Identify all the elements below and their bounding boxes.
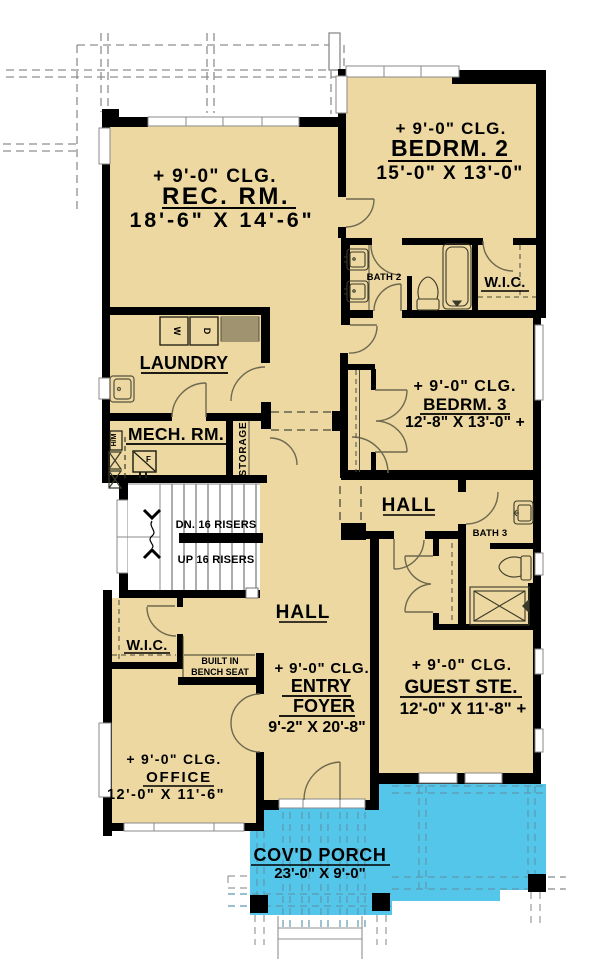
svg-text:LAUNDRY: LAUNDRY bbox=[140, 353, 229, 373]
svg-text:23'-0" X 9'-0": 23'-0" X 9'-0" bbox=[274, 865, 365, 882]
svg-text:HALL: HALL bbox=[276, 602, 331, 623]
svg-text:+ 9'-0" CLG.: + 9'-0" CLG. bbox=[412, 657, 512, 674]
svg-text:18'-6" X 14'-6": 18'-6" X 14'-6" bbox=[130, 208, 315, 232]
svg-text:REC. RM.: REC. RM. bbox=[162, 183, 290, 210]
svg-text:H/M: H/M bbox=[111, 433, 118, 446]
svg-text:W: W bbox=[172, 327, 182, 336]
svg-text:W.I.C.: W.I.C. bbox=[484, 275, 525, 291]
svg-text:BATH 3: BATH 3 bbox=[473, 528, 508, 539]
svg-text:ENTRY: ENTRY bbox=[291, 676, 351, 696]
svg-text:D: D bbox=[202, 328, 212, 335]
svg-text:+ 9'-0" CLG.: + 9'-0" CLG. bbox=[275, 660, 370, 677]
svg-text:DN. 16 RISERS: DN. 16 RISERS bbox=[176, 519, 257, 531]
svg-text:+ 9'-0" CLG.: + 9'-0" CLG. bbox=[126, 751, 221, 767]
svg-text:FOYER: FOYER bbox=[293, 696, 355, 716]
svg-text:HALL: HALL bbox=[382, 495, 437, 516]
svg-text:UP 16 RISERS: UP 16 RISERS bbox=[178, 554, 255, 566]
svg-text:15'-0" X 13'-0": 15'-0" X 13'-0" bbox=[376, 163, 523, 184]
svg-text:W.I.C.: W.I.C. bbox=[126, 638, 167, 654]
svg-text:STORAGE: STORAGE bbox=[238, 422, 249, 477]
svg-text:12'-8" X 13'-0" +: 12'-8" X 13'-0" + bbox=[405, 414, 525, 431]
svg-text:OFFICE: OFFICE bbox=[146, 769, 212, 786]
svg-text:+ 9'-0" CLG.: + 9'-0" CLG. bbox=[414, 378, 517, 395]
svg-text:BATH 2: BATH 2 bbox=[367, 272, 402, 283]
svg-text:F: F bbox=[146, 455, 151, 464]
svg-text:COV'D PORCH: COV'D PORCH bbox=[254, 845, 387, 865]
svg-text:BEDRM. 3: BEDRM. 3 bbox=[423, 395, 507, 414]
svg-text:BEDRM. 2: BEDRM. 2 bbox=[391, 135, 509, 161]
svg-text:MECH. RM.: MECH. RM. bbox=[128, 424, 224, 444]
svg-text:BENCH SEAT: BENCH SEAT bbox=[191, 667, 249, 677]
svg-text:GUEST STE.: GUEST STE. bbox=[405, 677, 518, 698]
svg-text:12'-0" X 11'-6": 12'-0" X 11'-6" bbox=[107, 787, 225, 803]
svg-text:12'-0" X 11'-8" +: 12'-0" X 11'-8" + bbox=[400, 699, 527, 718]
svg-text:9'-2" X 20'-8": 9'-2" X 20'-8" bbox=[268, 719, 366, 736]
svg-text:BUILT IN: BUILT IN bbox=[201, 656, 238, 666]
